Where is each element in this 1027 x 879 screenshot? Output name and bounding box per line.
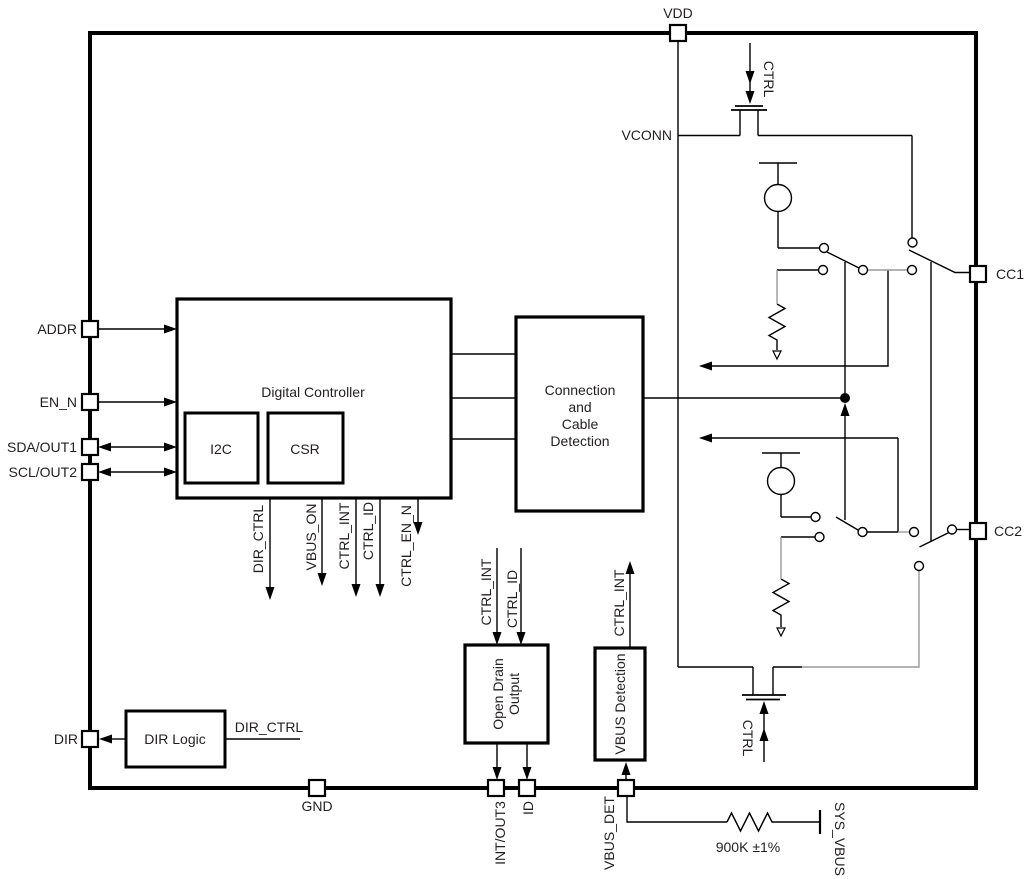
current-source-icon [768, 468, 795, 495]
block-label-open-drain-2: Output [506, 673, 522, 715]
pin-label-id: ID [520, 801, 536, 815]
pin-vdd [670, 25, 686, 41]
pin-label-sda-out1: SDA/OUT1 [7, 439, 77, 455]
ground-arrow-icon [773, 351, 781, 359]
block-label-open-drain-1: Open Drain [490, 658, 506, 730]
pin-id [519, 780, 535, 796]
pin-label-vbus-det: VBUS_DET [601, 796, 617, 870]
pin-cc2 [970, 523, 986, 539]
block-label-connection-2: and [568, 399, 591, 415]
switch-contacts [811, 238, 957, 571]
block-label-csr: CSR [290, 441, 320, 457]
pin-gnd [309, 780, 325, 796]
signal-label-ctrl-id-1: CTRL_ID [360, 502, 376, 560]
functional-block-diagram: VDD ADDR EN_N SDA/OUT1 SCL/OUT2 DIR GND … [0, 0, 1027, 879]
block-label-connection-1: Connection [545, 382, 616, 398]
block-label-vbus-detection: VBUS Detection [612, 653, 628, 754]
signal-label-dir-ctrl-h: DIR_CTRL [235, 719, 304, 735]
signal-label-dir-ctrl-v: DIR_CTRL [250, 505, 266, 574]
pin-label-gnd: GND [301, 798, 332, 814]
signal-label-vbus-on: VBUS_ON [303, 504, 319, 571]
signal-label-ctrl-int-1: CTRL_INT [336, 502, 352, 569]
pin-label-cc1: CC1 [996, 266, 1024, 282]
pin-label-scl-out2: SCL/OUT2 [9, 464, 78, 480]
pin-int-out3 [488, 780, 504, 796]
pin-label-int-out3: INT/OUT3 [492, 801, 508, 865]
pin-addr [82, 321, 98, 337]
signal-label-ctrl-id-2: CTRL_ID [504, 570, 520, 628]
signal-label-ctrl-int-2: CTRL_INT [478, 558, 494, 625]
pin-dir [82, 731, 98, 747]
block-label-connection-3: Cable [562, 416, 599, 432]
diagram-canvas: VDD ADDR EN_N SDA/OUT1 SCL/OUT2 DIR GND … [0, 0, 1027, 879]
pin-label-cc2: CC2 [994, 523, 1022, 539]
signal-label-ctrl-top: CTRL [761, 61, 777, 98]
ground-arrow-icon [777, 628, 785, 636]
pin-label-dir: DIR [54, 731, 78, 747]
junction-dot [840, 393, 850, 403]
net-label-vconn: VCONN [621, 127, 672, 143]
signal-label-ctrl-bottom: CTRL [740, 720, 756, 757]
pin-en-n [82, 394, 98, 410]
pin-cc1 [970, 266, 986, 282]
block-label-i2c: I2C [210, 441, 232, 457]
net-label-sys-vbus: SYS_VBUS [832, 802, 848, 876]
block-label-dir-logic: DIR Logic [144, 731, 205, 747]
signal-label-ctrl-en-n: CTRL_EN_N [398, 505, 414, 587]
resistor-value-label: 900K ±1% [716, 839, 781, 855]
signal-label-ctrl-int-3: CTRL_INT [611, 569, 627, 636]
block-label-digital-controller: Digital Controller [261, 384, 365, 400]
pin-scl-out2 [82, 464, 98, 480]
current-source-icon [765, 185, 792, 212]
pin-vbus-det [618, 780, 634, 796]
pin-sda-out1 [82, 439, 98, 455]
pin-label-en-n: EN_N [40, 394, 77, 410]
pin-label-vdd: VDD [663, 5, 693, 21]
block-label-connection-4: Detection [550, 433, 609, 449]
pin-label-addr: ADDR [37, 321, 77, 337]
